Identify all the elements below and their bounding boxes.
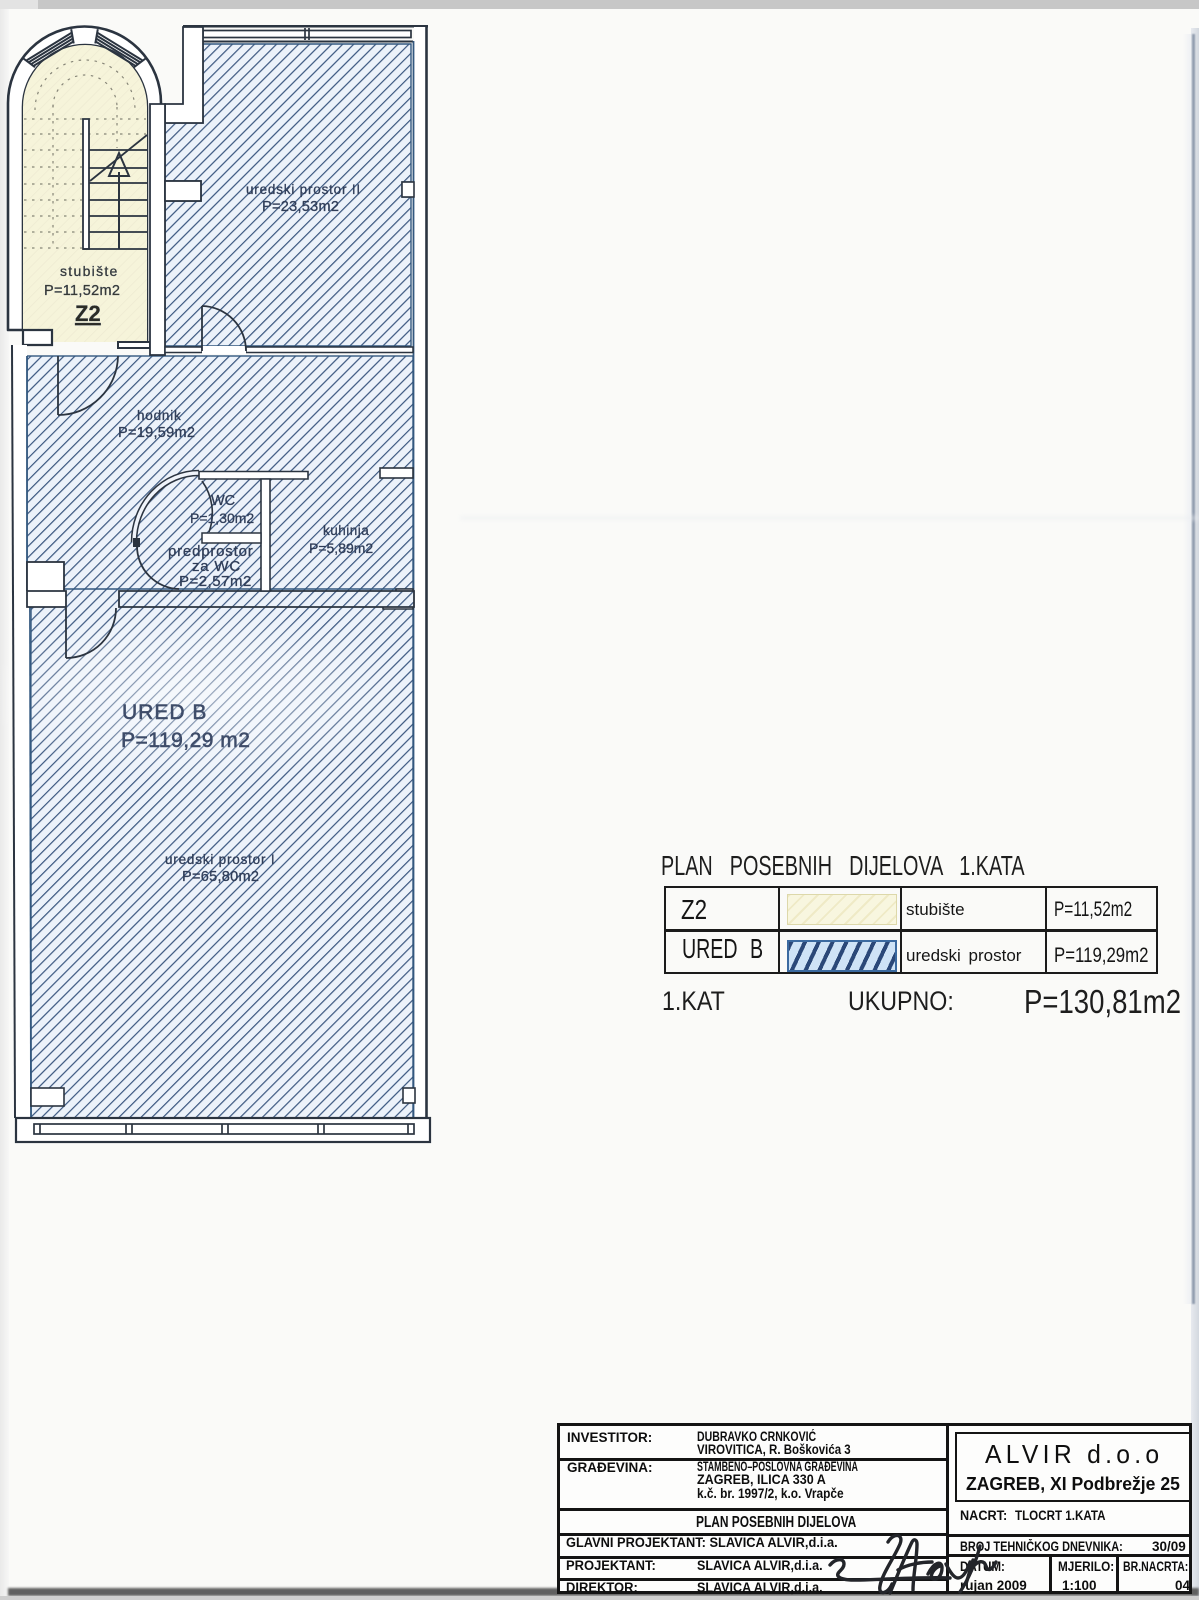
- svg-text:P=19,59m2: P=19,59m2: [118, 425, 195, 441]
- svg-text:P=23,53m2: P=23,53m2: [262, 199, 339, 215]
- svg-text:P=1,30m2: P=1,30m2: [190, 510, 254, 526]
- svg-text:P=2,57m2: P=2,57m2: [179, 573, 252, 590]
- svg-text:stubište: stubište: [60, 263, 119, 279]
- svg-text:P=65,80m2: P=65,80m2: [182, 869, 259, 885]
- svg-text:P=119,29 m2: P=119,29 m2: [121, 729, 250, 752]
- svg-text:P=5,89m2: P=5,89m2: [309, 540, 373, 556]
- svg-text:uredski prostor I: uredski prostor I: [165, 852, 275, 867]
- svg-text:URED B: URED B: [122, 701, 207, 724]
- svg-text:kuhinja: kuhinja: [323, 523, 369, 538]
- svg-text:WC: WC: [211, 493, 235, 509]
- svg-text:Z2: Z2: [75, 301, 101, 326]
- svg-text:hodnik: hodnik: [137, 408, 182, 423]
- svg-text:P=11,52m2: P=11,52m2: [44, 283, 120, 299]
- svg-text:uredski prostor II: uredski prostor II: [246, 182, 361, 197]
